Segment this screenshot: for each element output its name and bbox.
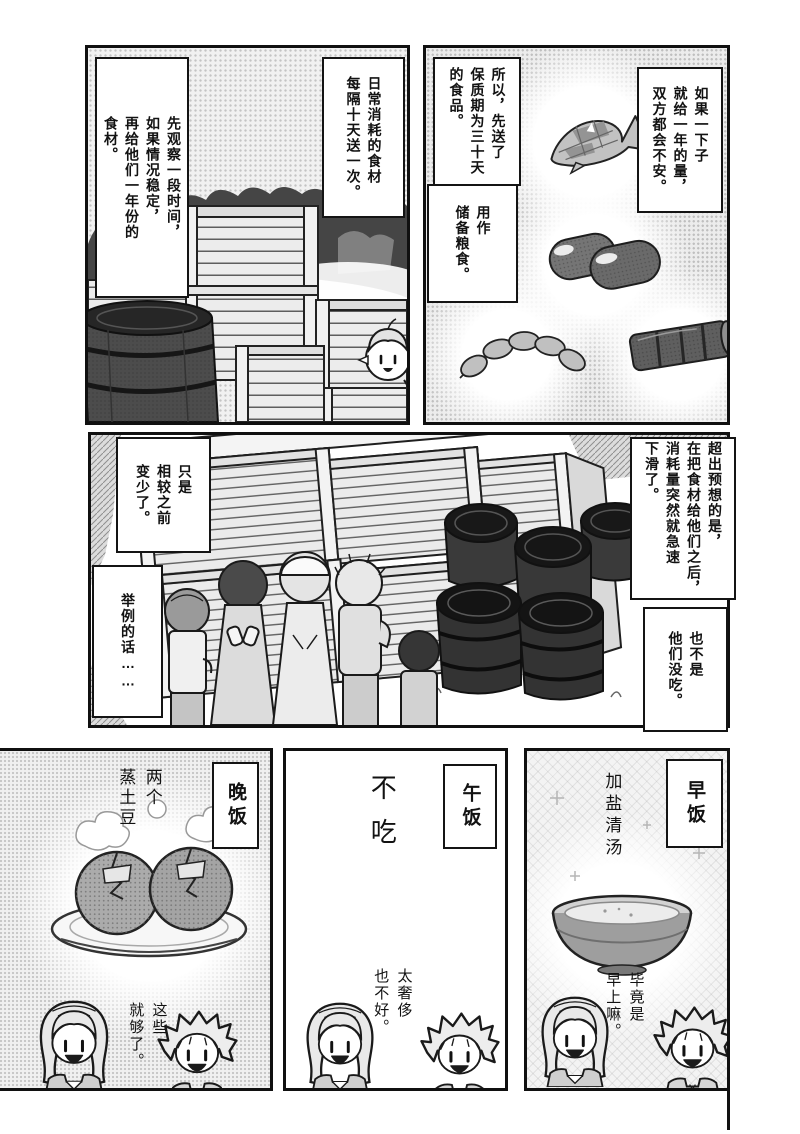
soup-bowl-illustration [553, 896, 691, 975]
barrel-illustration [88, 301, 218, 422]
speech-bubble-for-example: 举例的话…… [92, 565, 163, 718]
villager-girl-cap [273, 552, 337, 725]
speech-bubble-worry: 如果一下子 就给一年的量， 双方都会不安。 [637, 67, 723, 213]
caption-lunch: 不吃 [362, 774, 402, 862]
speech-bubble-shelf-life: 所以，先送了 保质期为三十天 的食品。 [433, 57, 521, 186]
cured-roll-illustration [629, 319, 727, 371]
speech-dinner: 这些 就够了。 [124, 1002, 171, 1070]
chibi-girl [308, 1004, 373, 1088]
chibi-girl [543, 998, 608, 1087]
speech-bubble-not-skipping: 也不是 他们没吃。 [643, 607, 728, 732]
chibi-boy [655, 1008, 728, 1088]
speech-bubble-just-less: 只是 相较之前 变少了。 [116, 437, 211, 553]
villager-child [399, 631, 439, 725]
villager-girl-bob [211, 561, 275, 725]
meal-label-breakfast: 早饭 [666, 759, 723, 848]
chibi-girl [41, 1002, 107, 1088]
caption-dinner: 两个 蒸土豆 [112, 768, 165, 828]
speech-breakfast: 毕竟是 早上嘛。 [601, 972, 648, 1040]
speech-bubble-reserve: 用作 储备粮食。 [427, 184, 518, 303]
speech-lunch: 太奢侈 也不好。 [369, 968, 416, 1036]
sausage-links-illustration [457, 331, 588, 380]
salted-meat-illustration [546, 221, 664, 300]
manga-page: 日常消耗的食材 每隔十天送一次。 先观察一段时间， 如果情况稳定， 再给他们一年… [0, 0, 800, 1134]
speech-bubble-observe: 先观察一段时间， 如果情况稳定， 再给他们一年份的 食材。 [95, 57, 189, 298]
chibi-boy [422, 1014, 499, 1088]
villager-boy-1 [165, 589, 211, 725]
caption-breakfast: 加盐清汤 [598, 772, 624, 860]
speech-bubble-schedule: 日常消耗的食材 每隔十天送一次。 [322, 57, 405, 218]
villager-boy-blond [335, 554, 390, 725]
speech-bubble-unexpected: 超出预想的是， 在把食材给他们之后， 消耗量突然就急速 下滑了。 [630, 437, 736, 600]
meal-label-lunch: 午饭 [443, 764, 497, 849]
panel-border-bleed [727, 1089, 730, 1130]
meal-label-dinner: 晚饭 [212, 762, 259, 849]
